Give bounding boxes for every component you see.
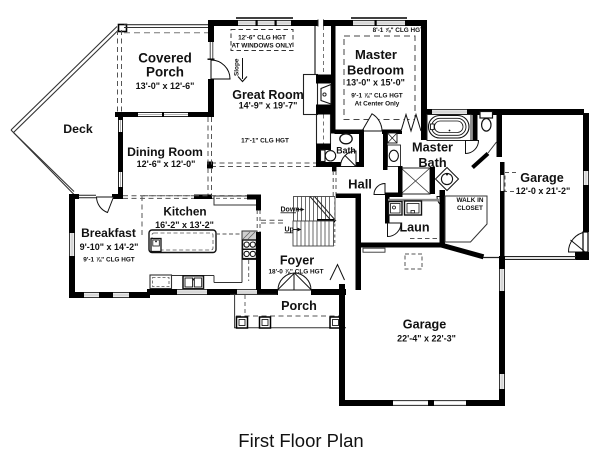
svg-text:17'-1" CLG HGT: 17'-1" CLG HGT xyxy=(241,138,289,145)
svg-text:8'-1 ⅞" CLG HGT: 8'-1 ⅞" CLG HGT xyxy=(373,27,425,34)
svg-text:Laun: Laun xyxy=(399,221,429,235)
svg-text:Garage: Garage xyxy=(520,171,563,185)
svg-text:Breakfast: Breakfast xyxy=(81,226,136,240)
svg-text:9'-1 ⅞" CLG HGT: 9'-1 ⅞" CLG HGT xyxy=(83,257,135,264)
svg-text:Slope: Slope xyxy=(234,58,241,76)
svg-text:Porch: Porch xyxy=(281,299,317,313)
svg-text:13'-0" x 15'-0": 13'-0" x 15'-0" xyxy=(346,78,405,88)
svg-text:Garage: Garage xyxy=(403,318,446,332)
svg-text:Covered: Covered xyxy=(138,51,192,66)
svg-text:Hall: Hall xyxy=(348,177,372,192)
svg-text:Master: Master xyxy=(412,141,453,155)
svg-text:At Center Only: At Center Only xyxy=(355,101,400,108)
svg-text:22'-4" x 22'-3": 22'-4" x 22'-3" xyxy=(397,334,456,344)
svg-text:WALK IN: WALK IN xyxy=(457,197,484,204)
svg-text:Master: Master xyxy=(355,47,397,62)
svg-text:14'-9" x 19'-7": 14'-9" x 19'-7" xyxy=(239,101,298,111)
svg-text:12'-0 x 21'-2": 12'-0 x 21'-2" xyxy=(516,186,571,196)
svg-text:Dining Room: Dining Room xyxy=(127,145,203,159)
svg-text:12'-6" x 12'-0": 12'-6" x 12'-0" xyxy=(137,159,196,169)
svg-text:Deck: Deck xyxy=(63,122,93,136)
svg-text:9'-1 ⅞" CLG HGT: 9'-1 ⅞" CLG HGT xyxy=(351,93,403,100)
svg-text:Kitchen: Kitchen xyxy=(163,205,206,219)
svg-text:First Floor Plan: First Floor Plan xyxy=(238,430,363,451)
svg-text:12'-6" CLG HGT: 12'-6" CLG HGT xyxy=(238,35,286,42)
svg-text:16'-2" x 13'-2": 16'-2" x 13'-2" xyxy=(155,220,214,230)
svg-text:AT WINDOWS ONLY: AT WINDOWS ONLY xyxy=(231,43,293,50)
svg-text:9'-10" x 14'-2": 9'-10" x 14'-2" xyxy=(80,242,139,252)
svg-text:CLOSET: CLOSET xyxy=(457,205,483,212)
svg-text:Bath: Bath xyxy=(336,146,356,156)
svg-text:Porch: Porch xyxy=(146,65,184,80)
svg-text:Foyer: Foyer xyxy=(280,254,314,268)
svg-text:18'-0 ⅞" CLG HGT: 18'-0 ⅞" CLG HGT xyxy=(269,269,324,276)
svg-text:Bedroom: Bedroom xyxy=(347,63,404,78)
svg-text:13'-0" x 12'-6": 13'-0" x 12'-6" xyxy=(136,81,195,91)
